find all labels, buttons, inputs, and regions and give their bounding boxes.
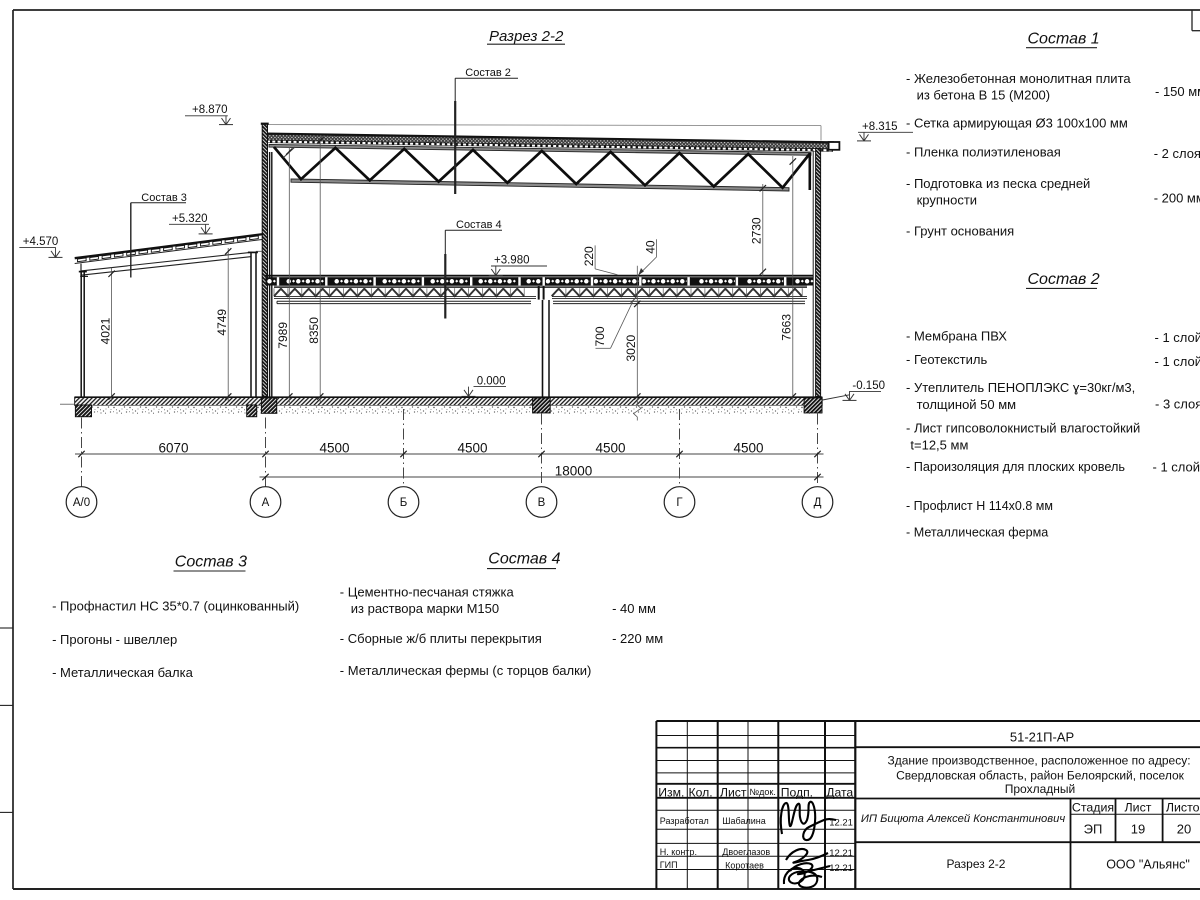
svg-text:4500: 4500 bbox=[319, 440, 349, 455]
svg-text:А/0: А/0 bbox=[73, 497, 90, 509]
svg-text:4500: 4500 bbox=[595, 440, 625, 455]
svg-text:+5.320: +5.320 bbox=[172, 213, 208, 225]
svg-text:из бетона В 15 (М200): из бетона В 15 (М200) bbox=[917, 88, 1051, 103]
svg-text:2730: 2730 bbox=[750, 217, 764, 244]
svg-text:Лист: Лист bbox=[1125, 801, 1152, 815]
svg-text:В: В bbox=[538, 497, 546, 509]
svg-text:Кол.: Кол. bbox=[689, 786, 713, 800]
svg-text:- 220 мм: - 220 мм bbox=[612, 631, 663, 646]
svg-text:Листов: Листов bbox=[1166, 801, 1200, 815]
svg-text:20: 20 bbox=[1177, 822, 1191, 837]
svg-text:- Сетка армирующая Ø3 100х100: - Сетка армирующая Ø3 100х100 мм bbox=[906, 116, 1128, 131]
svg-text:4500: 4500 bbox=[457, 440, 487, 455]
svg-text:12.21: 12.21 bbox=[829, 863, 853, 874]
svg-text:ГИП: ГИП bbox=[660, 860, 678, 870]
svg-text:7663: 7663 bbox=[780, 314, 794, 341]
svg-text:Н. контр.: Н. контр. bbox=[660, 847, 697, 857]
svg-text:Д: Д bbox=[814, 497, 822, 509]
svg-text:- 40 мм: - 40 мм bbox=[612, 601, 656, 616]
svg-text:12.21: 12.21 bbox=[829, 848, 853, 859]
svg-text:+8.315: +8.315 bbox=[862, 121, 898, 133]
svg-text:+3.980: +3.980 bbox=[494, 255, 530, 267]
svg-text:+4.570: +4.570 bbox=[23, 236, 59, 248]
svg-text:Б: Б bbox=[400, 497, 408, 509]
svg-text:3020: 3020 bbox=[624, 334, 638, 361]
svg-text:- Лист гипсоволокнистый влагос: - Лист гипсоволокнистый влагостойкий bbox=[906, 421, 1140, 436]
svg-text:Двоеглазов: Двоеглазов bbox=[722, 847, 770, 857]
svg-text:6070: 6070 bbox=[158, 440, 188, 455]
svg-text:- Металлическая фермы (с торцо: - Металлическая фермы (с торцов балки) bbox=[340, 663, 592, 678]
svg-text:- 1 слой: - 1 слой bbox=[1155, 330, 1200, 345]
svg-text:4749: 4749 bbox=[215, 309, 229, 336]
svg-text:Прохладный: Прохладный bbox=[1005, 782, 1075, 796]
svg-text:7989: 7989 bbox=[276, 322, 290, 349]
svg-text:- Геотекстиль: - Геотекстиль bbox=[906, 352, 987, 367]
svg-text:4500: 4500 bbox=[733, 440, 763, 455]
svg-text:Состав 1: Состав 1 bbox=[1028, 31, 1100, 48]
svg-text:Состав 3: Состав 3 bbox=[175, 554, 247, 571]
svg-text:19: 19 bbox=[1131, 822, 1145, 837]
svg-text:Состав 2: Состав 2 bbox=[465, 67, 511, 79]
svg-text:-0.150: -0.150 bbox=[852, 380, 885, 392]
svg-text:- Пароизоляция для плоских кро: - Пароизоляция для плоских кровель bbox=[906, 460, 1125, 474]
svg-text:- Металлическая ферма: - Металлическая ферма bbox=[906, 526, 1048, 540]
svg-text:8350: 8350 bbox=[307, 317, 321, 344]
svg-text:- Профнастил НС 35*0.7 (оцинко: - Профнастил НС 35*0.7 (оцинкованный) bbox=[52, 599, 299, 614]
svg-text:- Прогоны - швеллер: - Прогоны - швеллер bbox=[52, 632, 177, 647]
svg-text:220: 220 bbox=[582, 246, 596, 266]
svg-text:18000: 18000 bbox=[555, 463, 593, 478]
svg-text:толщиной 50 мм: толщиной 50 мм bbox=[917, 397, 1017, 412]
svg-text:0.000: 0.000 bbox=[477, 375, 506, 387]
svg-text:- Подготовка из песка средней: - Подготовка из песка средней bbox=[906, 176, 1090, 191]
svg-text:- Профлист Н 114х0.8 мм: - Профлист Н 114х0.8 мм bbox=[906, 499, 1053, 513]
svg-text:Здание производственное, распо: Здание производственное, расположенное п… bbox=[887, 754, 1190, 768]
svg-text:Лист: Лист bbox=[720, 786, 747, 800]
svg-text:Разрез 2-2: Разрез 2-2 bbox=[947, 857, 1006, 871]
svg-text:- Металлическая балка: - Металлическая балка bbox=[52, 665, 193, 680]
svg-text:Г: Г bbox=[676, 497, 683, 509]
svg-text:Коротаев: Коротаев bbox=[725, 860, 764, 870]
svg-text:- 3 слоя: - 3 слоя bbox=[1155, 396, 1200, 411]
svg-text:700: 700 bbox=[593, 326, 607, 346]
svg-text:- 200 мм: - 200 мм bbox=[1154, 191, 1200, 206]
svg-text:из раствора марки М150: из раствора марки М150 bbox=[351, 601, 499, 616]
svg-text:40: 40 bbox=[643, 240, 657, 254]
svg-text:ЭП: ЭП bbox=[1084, 822, 1103, 837]
svg-text:- Железобетонная монолитная п: - Железобетонная монолитная плита bbox=[906, 71, 1131, 86]
svg-text:- 150 мм: - 150 мм bbox=[1155, 84, 1200, 99]
svg-text:Состав 4: Состав 4 bbox=[456, 219, 502, 231]
svg-text:Стадия: Стадия bbox=[1072, 801, 1114, 815]
svg-text:А: А bbox=[262, 497, 270, 509]
svg-text:- Сборные ж/б плиты перекрытия: - Сборные ж/б плиты перекрытия bbox=[340, 631, 542, 646]
svg-text:Дата: Дата bbox=[826, 786, 853, 800]
svg-text:Изм.: Изм. bbox=[658, 786, 684, 800]
svg-text:ИП Бицюта Алексей Константинов: ИП Бицюта Алексей Константинович bbox=[861, 813, 1065, 825]
svg-text:- Мембрана ПВХ: - Мембрана ПВХ bbox=[906, 329, 1007, 344]
svg-text:крупности: крупности bbox=[917, 193, 977, 208]
svg-text:ООО "Альянс": ООО "Альянс" bbox=[1106, 858, 1190, 872]
svg-text:- 1 слой: - 1 слой bbox=[1155, 354, 1200, 369]
svg-text:Шабалина: Шабалина bbox=[722, 816, 765, 826]
svg-text:№док.: №док. bbox=[750, 787, 776, 797]
svg-text:Свердловская область, район Бе: Свердловская область, район Белоярский, … bbox=[896, 769, 1185, 783]
svg-text:- 2 слоя: - 2 слоя bbox=[1154, 146, 1200, 161]
svg-text:Состав 2: Состав 2 bbox=[1028, 271, 1100, 288]
svg-text:Разрез 2-2: Разрез 2-2 bbox=[489, 28, 564, 45]
svg-text:- Грунт основания: - Грунт основания bbox=[906, 224, 1014, 239]
svg-text:Состав 4: Состав 4 bbox=[488, 551, 560, 568]
svg-text:51-21П-АР: 51-21П-АР bbox=[1010, 730, 1074, 745]
svg-text:- Пленка полиэтиленовая: - Пленка полиэтиленовая bbox=[906, 145, 1061, 160]
svg-text:- Цементно-песчаная стяжка: - Цементно-песчаная стяжка bbox=[340, 585, 515, 600]
svg-text:- Утеплитель ПЕНОПЛЭКС ɣ=30кг/: - Утеплитель ПЕНОПЛЭКС ɣ=30кг/м3, bbox=[906, 380, 1135, 395]
svg-text:+8.870: +8.870 bbox=[192, 104, 228, 116]
svg-text:Подп.: Подп. bbox=[781, 786, 813, 800]
svg-text:Разработал: Разработал bbox=[660, 816, 709, 826]
svg-text:- 1 слой: - 1 слой bbox=[1153, 460, 1200, 475]
svg-text:t=12,5 мм: t=12,5 мм bbox=[910, 438, 968, 453]
svg-text:4021: 4021 bbox=[98, 317, 112, 344]
